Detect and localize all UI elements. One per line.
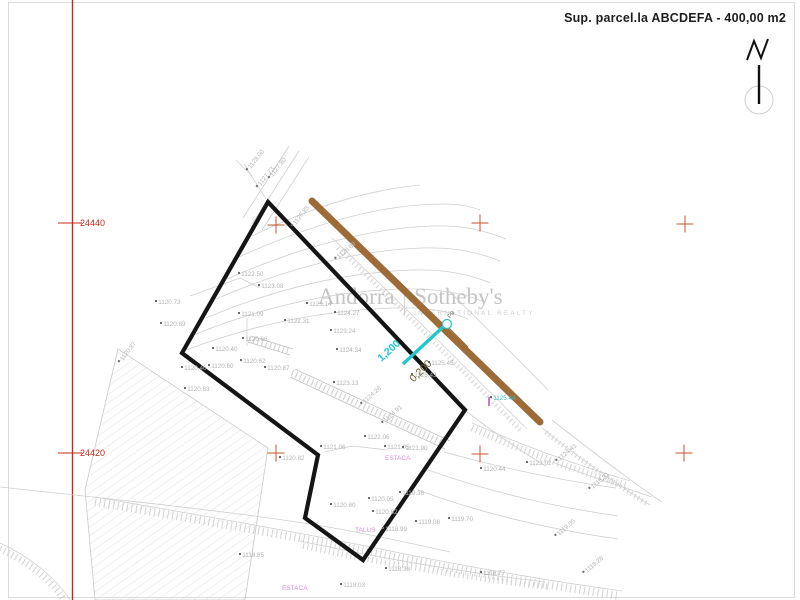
watermark-brand-left: Andorra (318, 285, 395, 308)
elevation-label: 1118.85 (239, 553, 264, 559)
elevation-label: 1123.08 (258, 284, 283, 290)
elevation-label: 1125.44 (490, 396, 515, 402)
elevation-label: 1127.80 (268, 157, 289, 181)
elevation-label: 1120.66 (242, 337, 267, 343)
site-plan-canvas: Andorra Sotheby's INTERNATIONAL REALTY (0, 0, 800, 600)
grid-cross-icon (472, 215, 489, 232)
survey-annotation: ESTACA (385, 456, 411, 463)
elevation-label: 1118.99 (382, 527, 407, 533)
elevation-label: 1122.31 (284, 319, 309, 325)
watermark: Andorra Sotheby's INTERNATIONAL REALTY (318, 285, 535, 317)
elevation-label: 1123.02 (526, 461, 551, 467)
elevation-label: 1127.73 (256, 166, 277, 190)
elevation-label: 1120.60 (208, 364, 233, 370)
parcel-boundary (182, 202, 465, 560)
elevation-label: 1118.38 (385, 567, 410, 573)
grid-cross-icon (677, 216, 694, 233)
elevation-label: 1120.05 (368, 497, 393, 503)
elevation-label: 1120.82 (279, 456, 304, 462)
watermark-divider (404, 286, 406, 316)
grid-cross-icon (268, 445, 285, 462)
elevation-label: 1120.80 (330, 503, 355, 509)
elevation-label: 1119.70 (448, 517, 473, 523)
elevation-label: 1118.31 (588, 472, 611, 493)
elevation-label: 1123.24 (330, 329, 355, 335)
elevation-label: 1122.06 (364, 435, 389, 441)
elevation-label: 1118.77 (480, 571, 505, 577)
grid-cross-icon (268, 217, 285, 234)
elevation-label: 1120.87 (264, 366, 289, 372)
grid-axis-label: 24420 (80, 449, 105, 458)
elevation-label: 1122.50 (238, 272, 263, 278)
grid-axis-label: 24440 (80, 219, 105, 228)
survey-annotation: 1,200 (376, 338, 403, 363)
elevation-label: 1123.13 (333, 381, 358, 387)
elevation-label: 1120.62 (240, 359, 265, 365)
watermark-subtitle: INTERNATIONAL REALTY (414, 310, 535, 317)
watermark-brand-right: Sotheby's (414, 285, 535, 308)
elevation-label: 1120.44 (480, 467, 505, 473)
elevation-label: 1121.06 (320, 445, 345, 451)
elevation-label: 1120.40 (212, 347, 237, 353)
elevation-label: 1120.73 (155, 300, 180, 306)
elevation-label: 1125.45 (428, 361, 453, 367)
elevation-label: 1124.34 (336, 348, 361, 354)
coordinate-grid-line (58, 0, 82, 600)
dimension-marks (403, 320, 489, 407)
north-arrow-icon (745, 39, 773, 114)
elevation-label: 1120.83 (184, 387, 209, 393)
parcel-area-title: Sup. parcel.la ABCDEFA - 400,00 m2 (564, 11, 786, 25)
elevation-label: 1124.41 (555, 443, 579, 464)
elevation-label: 1121.05 (384, 445, 409, 451)
survey-annotation: 0,200 (408, 358, 434, 384)
elevation-label: 1124.26 (360, 386, 383, 408)
elevation-label: 1120.69 (160, 322, 185, 328)
elevation-label: 1119.36 (399, 491, 424, 497)
elevation-label: 1124.91 (381, 405, 404, 427)
grid-cross-icon (676, 445, 693, 462)
survey-annotation: ESTACA (282, 586, 308, 593)
elevation-label: 1119.08 (415, 520, 440, 526)
elevation-label: 1119.05 (554, 519, 577, 540)
elevation-label: 1118.28 (582, 556, 605, 577)
grid-cross-icon (472, 446, 489, 463)
elevation-label: 1125.43 (411, 373, 436, 379)
elevation-label: 1126.89 (334, 241, 358, 262)
elevation-label: 1118.03 (340, 583, 365, 589)
hatched-area (85, 349, 268, 600)
elevation-label: 1120.87 (118, 341, 139, 365)
elevation-label: 1121.90 (402, 446, 427, 452)
survey-annotation: TALUS (355, 528, 375, 535)
contour-lines (0, 146, 662, 600)
elevation-label: 1126.85 (291, 205, 312, 229)
elevation-label: 1120.46 (181, 366, 206, 372)
elevation-label: 1120.82 (372, 510, 397, 516)
elevation-label: 1121.09 (238, 312, 263, 318)
elevation-label: 1128.00 (246, 149, 267, 173)
